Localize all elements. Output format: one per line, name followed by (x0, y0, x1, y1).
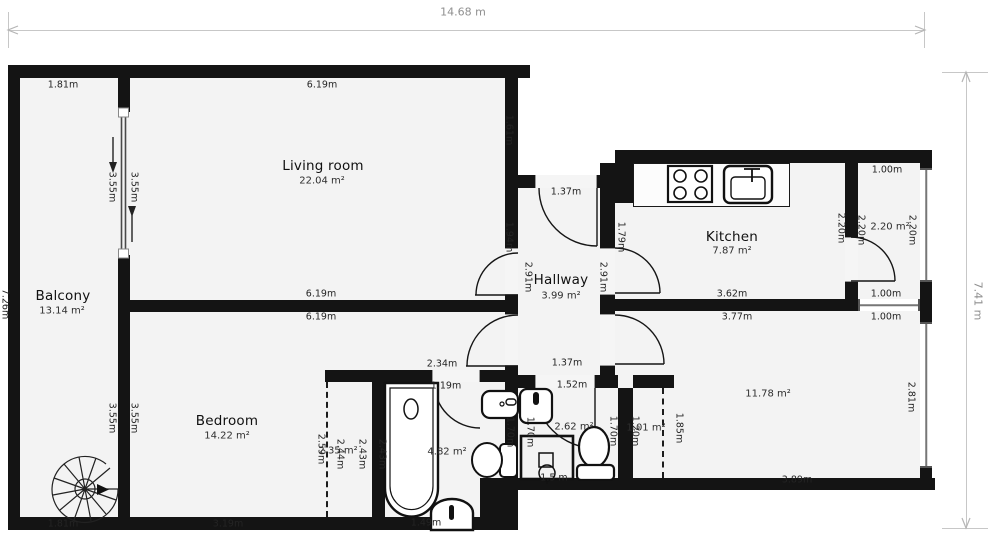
kitchen-door-icon (615, 248, 660, 293)
sliding-door-icon (109, 108, 136, 258)
bathroom-toilet-icon (472, 443, 517, 477)
fixtures-layer (0, 0, 992, 544)
smallroom-door-icon (851, 237, 895, 281)
kitchen-sink-icon (724, 166, 772, 203)
entrance-door-icon (539, 188, 597, 246)
bathroom-basin-icon (431, 499, 473, 530)
bigroom-door-icon (615, 315, 664, 364)
bathroom-door-icon (434, 382, 480, 428)
wc-shower-icon (521, 436, 573, 484)
wc-toilet-icon (577, 427, 614, 480)
spiral-stairs-icon (52, 456, 118, 522)
wc-sink-icon (520, 389, 552, 423)
bedroom-door-icon (466, 315, 518, 366)
bathtub-icon (385, 383, 438, 517)
stove-icon (668, 166, 712, 202)
bathroom-sink-icon (482, 391, 518, 418)
floor-plan: 14.68 m 7.41 m 1.81m6.19m1.61m3.55m3.55m… (0, 0, 992, 544)
livingroom-door-icon (475, 253, 518, 295)
